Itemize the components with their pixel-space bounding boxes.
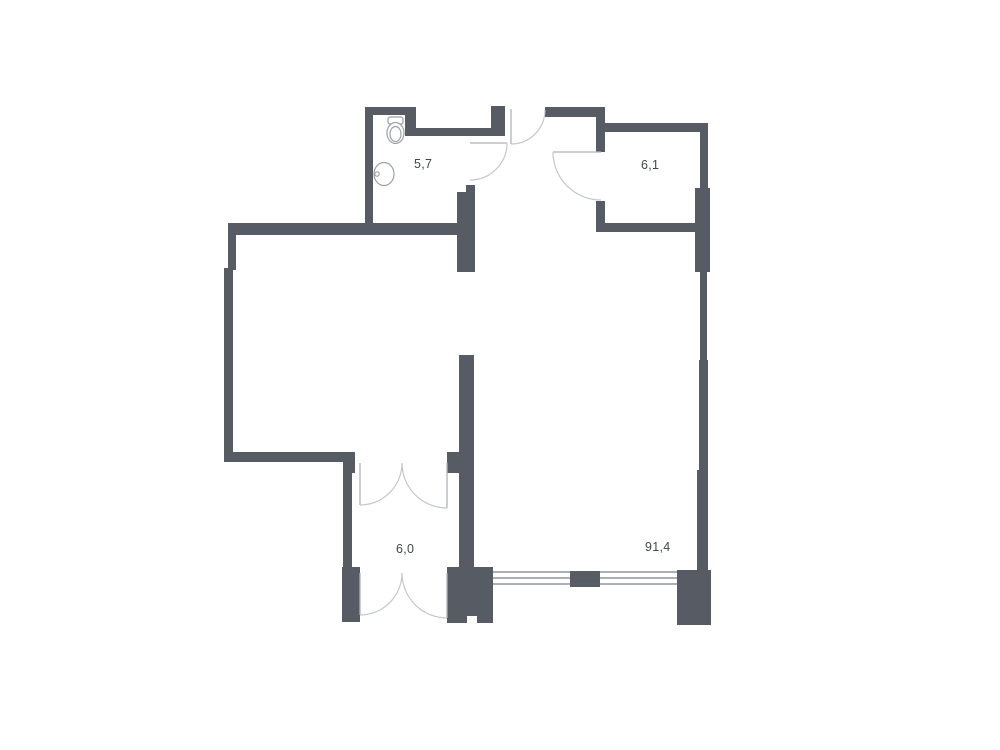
double-door-lower-swing-arc: [360, 573, 402, 615]
sink-icon: [374, 163, 394, 186]
wall-segment: [700, 123, 708, 189]
floor-plan-canvas: [0, 0, 1000, 750]
wall-pier: [695, 188, 710, 272]
floor-plan-page: 5,7 6,1 6,0 91,4: [0, 0, 1000, 750]
wall-segment: [700, 272, 707, 360]
fixtures-layer: [374, 117, 404, 186]
double-door-upper-swing-arc: [402, 463, 447, 508]
window-mullion: [570, 571, 600, 587]
room-area-label-bathroom: 5,7: [414, 157, 432, 171]
room-area-label-living-space: 91,4: [645, 540, 671, 554]
wall-segment: [598, 223, 702, 232]
wall-segment: [224, 268, 233, 462]
wall-segment: [697, 470, 708, 572]
wall-pier: [491, 106, 505, 136]
storage-door-swing-arc: [553, 152, 601, 200]
wall-segment: [699, 360, 708, 470]
wall-pier: [677, 570, 711, 625]
wall-segment: [447, 452, 474, 473]
room-area-label-storage: 6,1: [641, 158, 659, 172]
bathroom-door-swing-arc: [470, 143, 507, 180]
wall-segment: [228, 223, 458, 235]
wall-notch: [467, 616, 477, 624]
wall-segment: [228, 223, 236, 270]
double-door-lower-swing-arc: [402, 573, 447, 618]
wall-segment: [412, 128, 496, 136]
double-door-upper-swing-arc: [360, 463, 402, 505]
walls-layer: [224, 106, 711, 625]
wall-segment: [457, 192, 475, 272]
wall-pier: [342, 567, 360, 622]
wall-segment: [365, 107, 373, 235]
wall-segment: [343, 452, 355, 473]
wall-segment: [545, 107, 602, 117]
entry-door-swing-arc: [511, 110, 545, 144]
room-area-label-lower-room: 6,0: [396, 542, 414, 556]
wall-segment: [602, 123, 708, 132]
wall-pier: [447, 567, 493, 623]
wall-segment: [466, 185, 475, 193]
toilet-icon: [387, 117, 404, 144]
wall-segment: [343, 473, 352, 569]
wall-segment: [224, 452, 355, 462]
